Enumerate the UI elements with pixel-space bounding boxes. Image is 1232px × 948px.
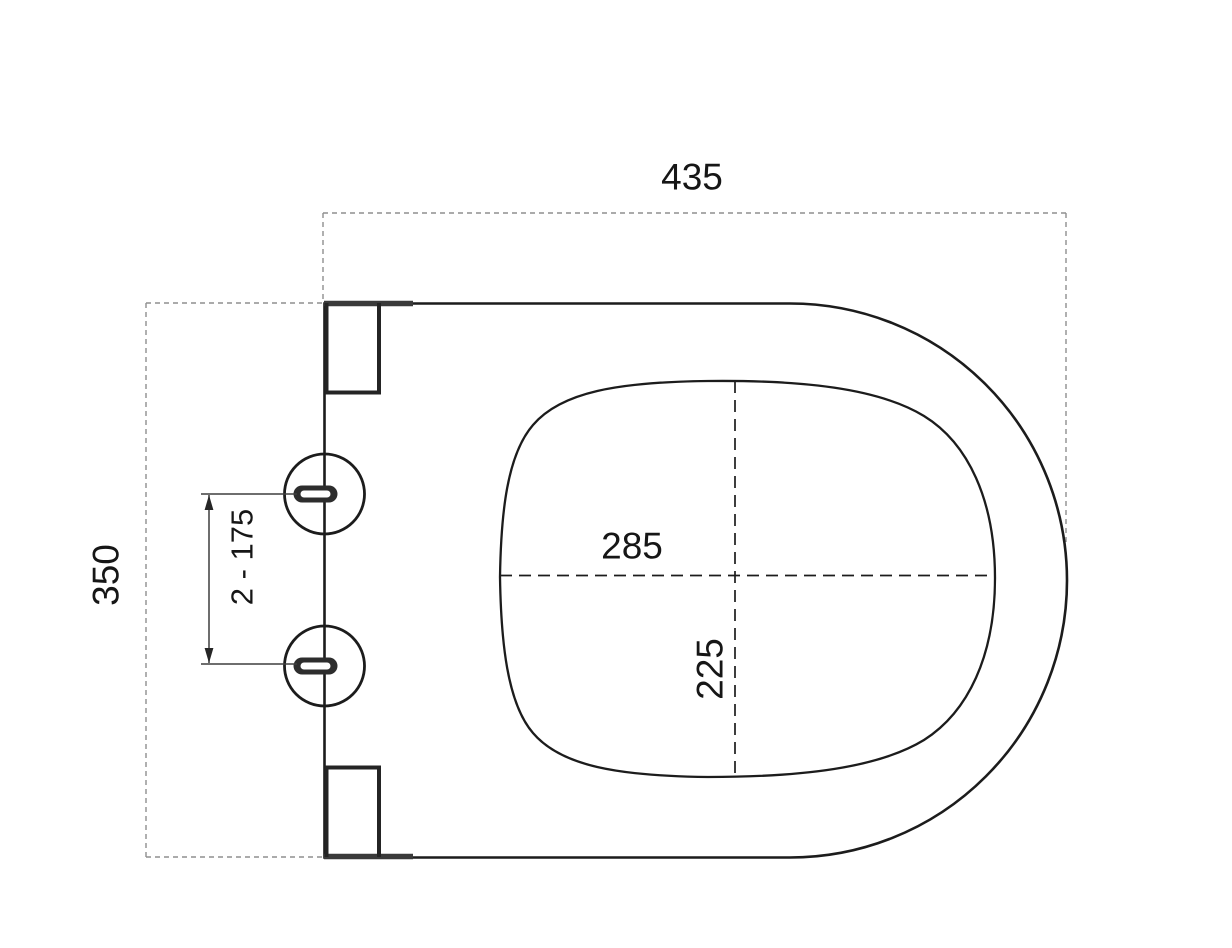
bowl-centerlines: 285 225	[500, 381, 995, 778]
hinge-bracket-bottom	[324, 766, 413, 857]
hinge-slot-top-hole	[301, 491, 331, 498]
hinge-spacing-label: 2 - 175	[225, 509, 260, 606]
dimension-overall-depth: 350	[86, 303, 324, 857]
hinge-slot-bottom-hole	[301, 663, 331, 670]
dimension-overall-width: 435	[323, 157, 1066, 547]
toilet-seat-technical-drawing: 435 350 285 225	[0, 0, 1232, 948]
arrow-up-icon	[205, 495, 214, 510]
overall-depth-label: 350	[86, 544, 127, 606]
arrow-down-icon	[205, 648, 214, 663]
overall-width-label: 435	[661, 157, 723, 198]
drawing-canvas: 435 350 285 225	[0, 0, 1232, 948]
bowl-opening-outline	[500, 381, 995, 777]
bowl-width-label: 285	[601, 526, 663, 567]
bowl-depth-label: 225	[690, 638, 731, 700]
dimension-hinge-spacing: 2 - 175	[201, 494, 297, 664]
seat-outer-outline	[325, 304, 1068, 858]
hinge-bracket-top	[324, 303, 413, 394]
